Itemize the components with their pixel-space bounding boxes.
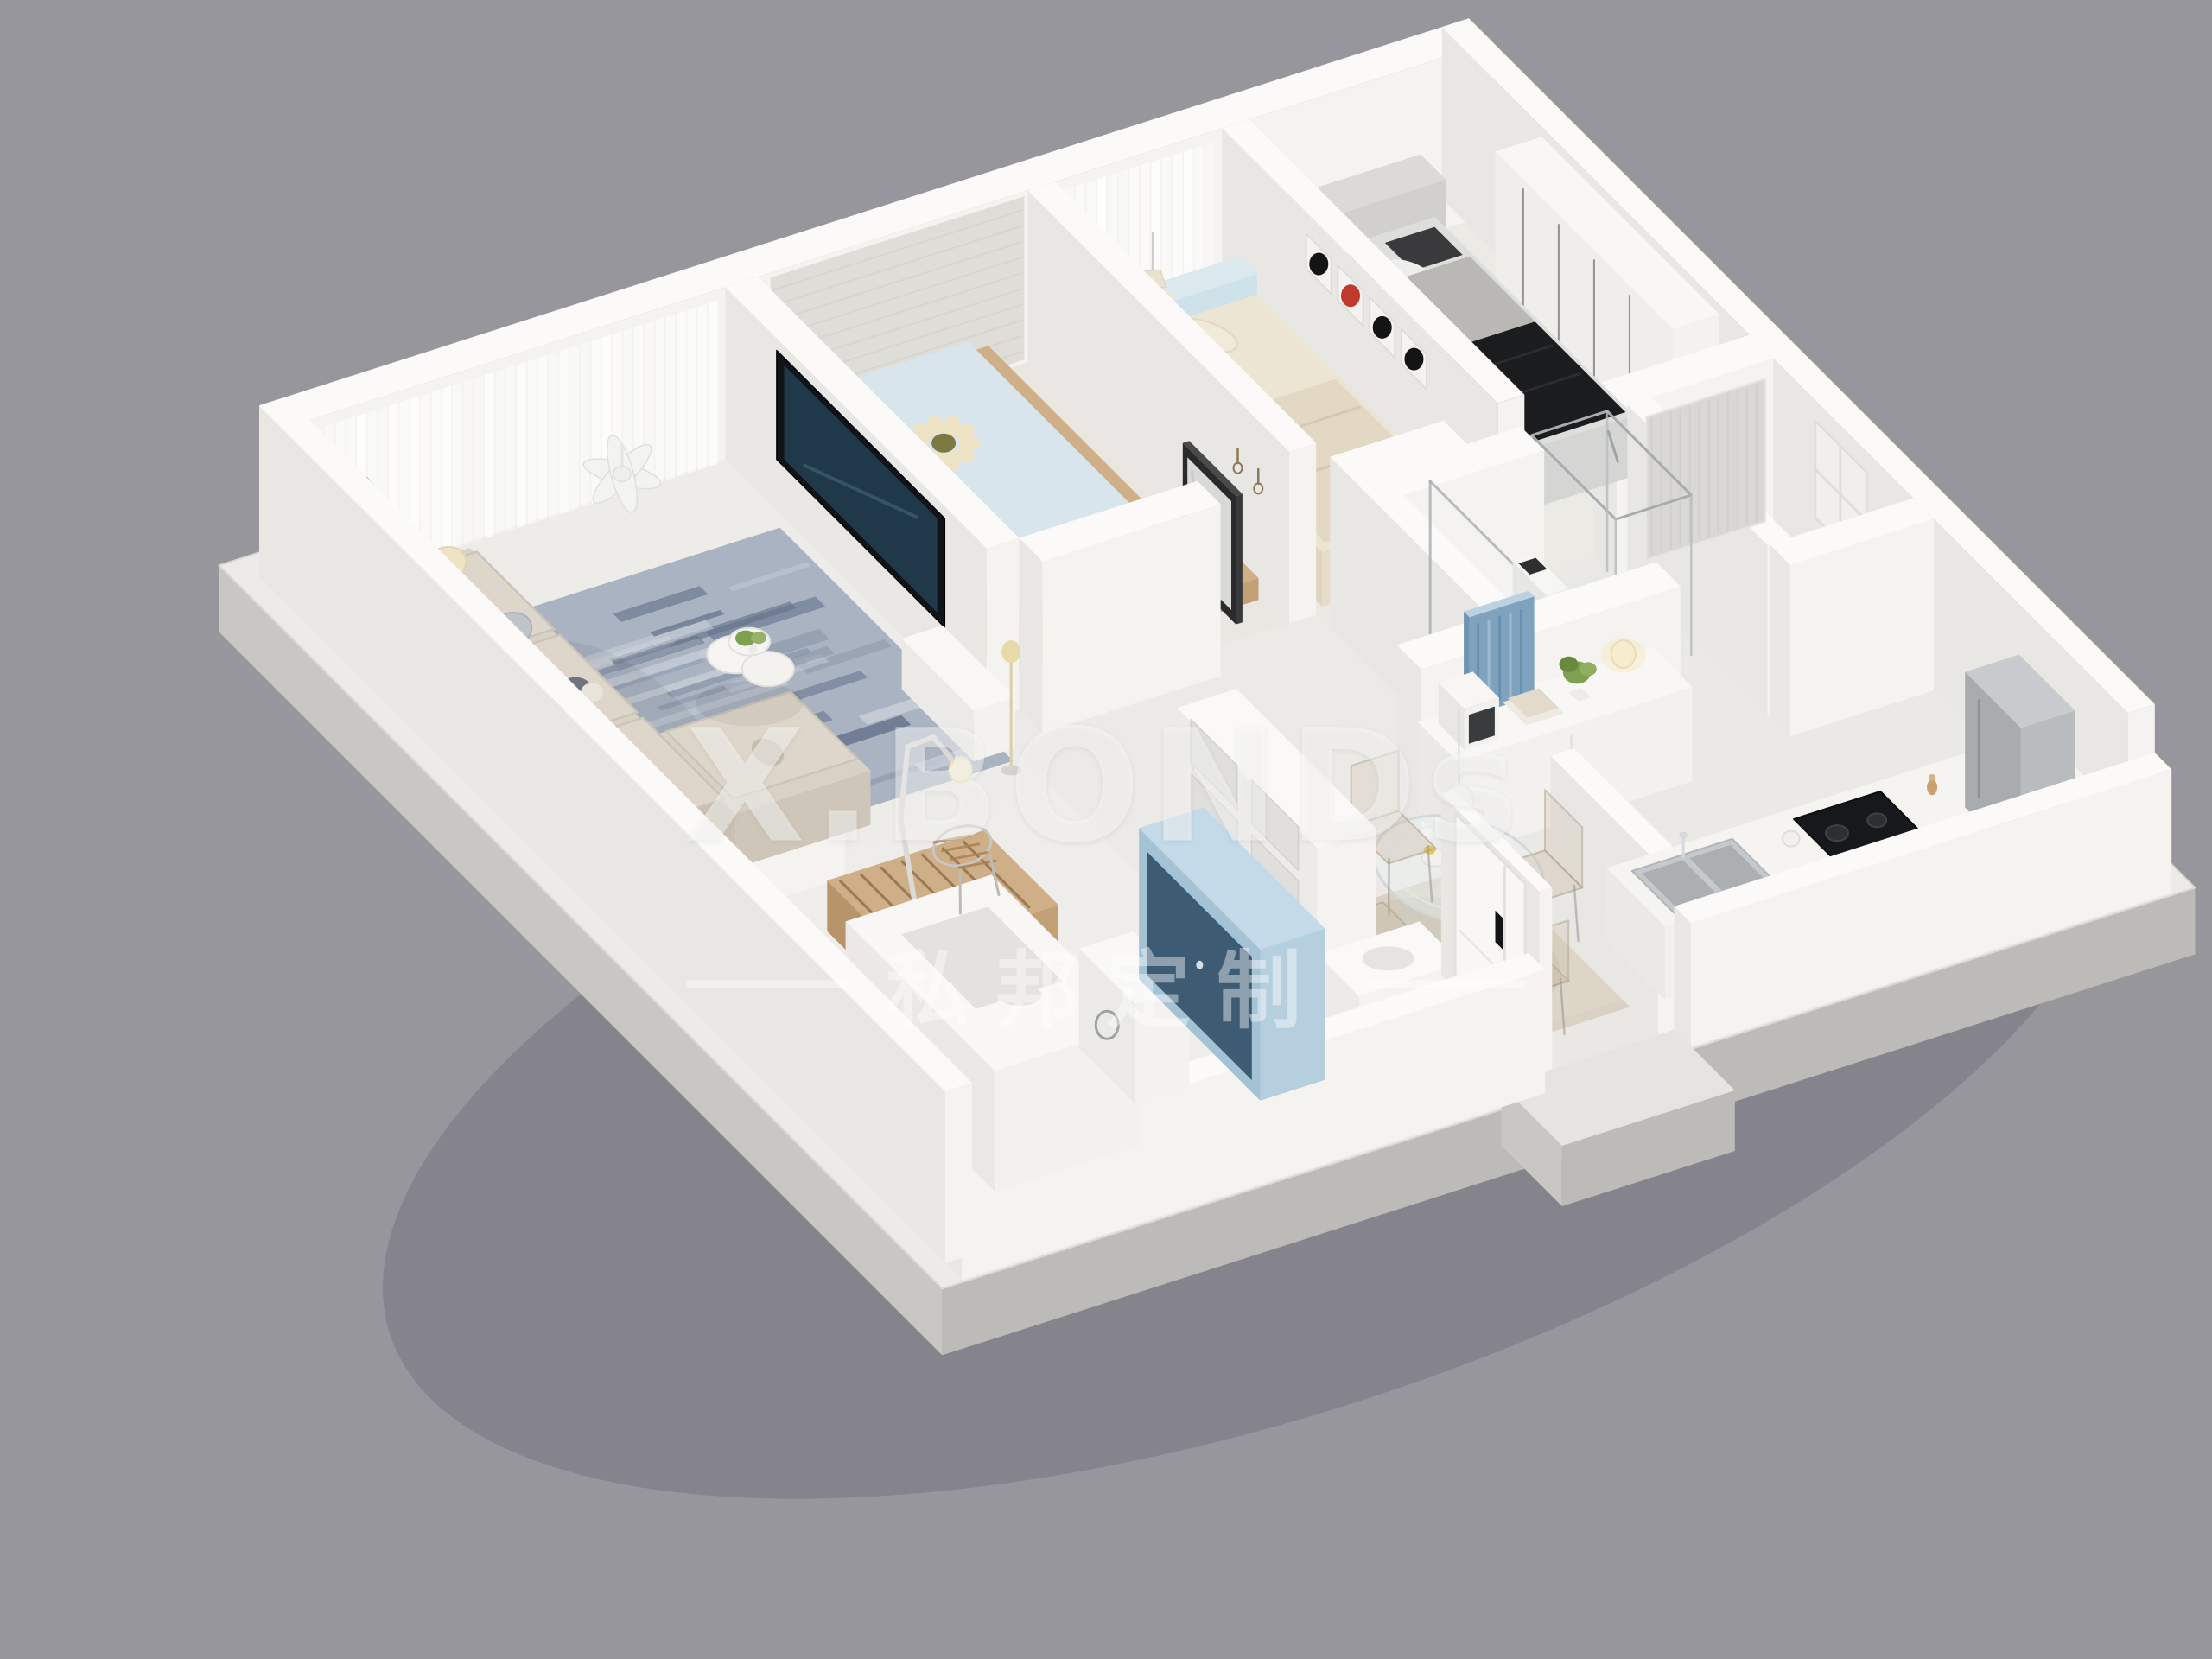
- table-lamp: [1601, 638, 1646, 672]
- kettle: [1783, 831, 1800, 847]
- render-stage: X.BONDs 私邦定制: [0, 0, 2212, 1659]
- floorplan-render: [0, 0, 2212, 1659]
